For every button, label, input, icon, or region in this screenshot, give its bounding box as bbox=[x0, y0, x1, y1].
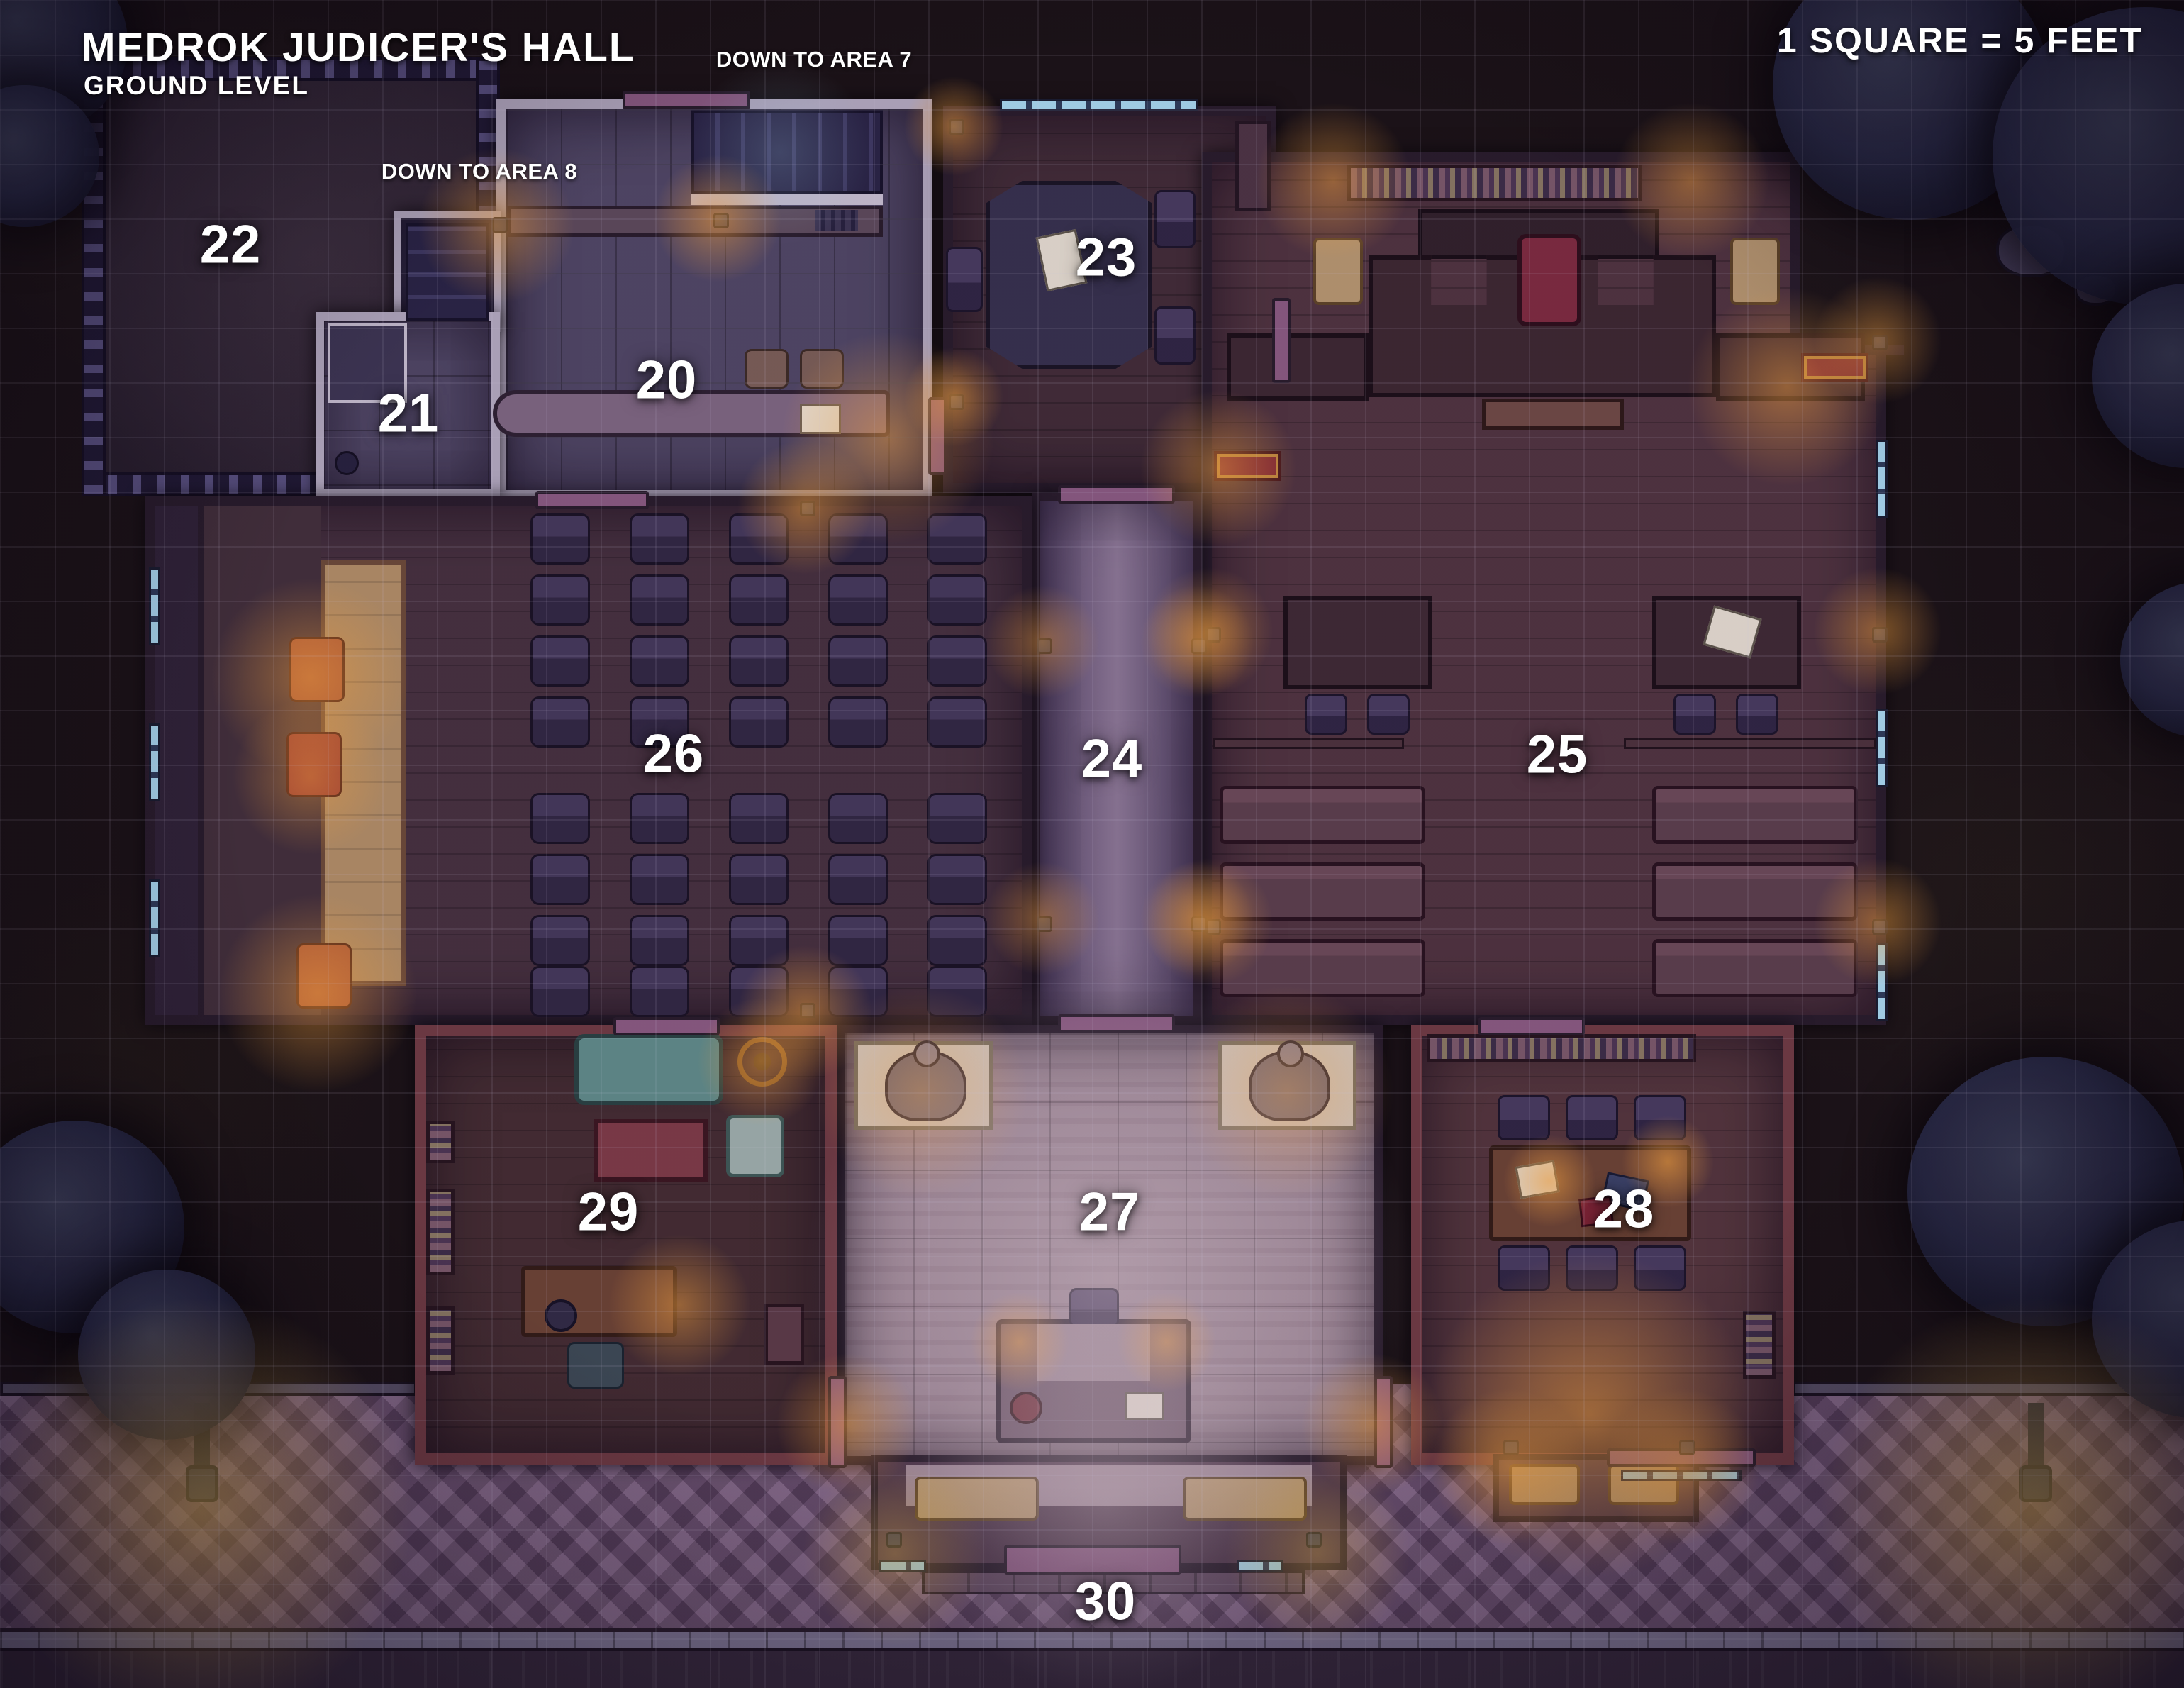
hat bbox=[545, 1299, 577, 1332]
map-scale-note: 1 SQUARE = 5 FEET bbox=[1777, 20, 2143, 61]
tribunal-chair bbox=[296, 943, 352, 1009]
gallery-chair bbox=[927, 635, 987, 687]
gallery-chair bbox=[630, 966, 689, 1017]
gallery-chair bbox=[729, 696, 789, 748]
side-table bbox=[764, 1304, 804, 1365]
window bbox=[1876, 943, 1888, 1021]
room-label-26: 26 bbox=[643, 723, 705, 785]
sconce-icon bbox=[949, 394, 964, 410]
meeting-chair bbox=[1498, 1245, 1550, 1291]
gallery-chair bbox=[530, 635, 590, 687]
bookshelf bbox=[1347, 165, 1642, 201]
window bbox=[1876, 440, 1888, 518]
counsel-chair bbox=[1673, 694, 1716, 735]
stairs-down-area-8 bbox=[406, 223, 489, 321]
gallery-chair bbox=[630, 915, 689, 966]
fruit-bowl bbox=[1010, 1392, 1042, 1424]
desk-chair bbox=[946, 247, 983, 312]
gallery-chair bbox=[729, 915, 789, 966]
open-book bbox=[800, 404, 841, 434]
tree bbox=[2120, 582, 2184, 738]
door bbox=[1478, 1017, 1585, 1035]
door bbox=[613, 1017, 720, 1035]
sconce-icon bbox=[713, 213, 729, 228]
map-note: DOWN TO AREA 8 bbox=[381, 159, 577, 184]
door bbox=[928, 397, 947, 475]
room-label-30: 30 bbox=[1075, 1571, 1137, 1633]
gallery-chair bbox=[927, 513, 987, 565]
sconce-icon bbox=[1191, 916, 1207, 932]
window bbox=[879, 1560, 926, 1572]
gallery-chair bbox=[729, 966, 789, 1017]
gallery-chair bbox=[530, 696, 590, 748]
guest-chair bbox=[1154, 190, 1196, 248]
coffee-table bbox=[594, 1119, 708, 1182]
counsel-table bbox=[1283, 596, 1432, 689]
room-label-29: 29 bbox=[578, 1182, 640, 1243]
meeting-chair bbox=[1566, 1245, 1618, 1291]
map-note: DOWN TO AREA 7 bbox=[716, 47, 912, 72]
gallery-chair bbox=[630, 854, 689, 905]
courtroom-bench bbox=[1652, 939, 1858, 997]
gallery-chair bbox=[927, 966, 987, 1017]
tree bbox=[2092, 284, 2184, 468]
sconce-icon bbox=[1503, 1440, 1519, 1455]
meeting-chair bbox=[1634, 1245, 1686, 1291]
sconce-icon bbox=[1037, 916, 1052, 932]
eagle-banner-icon bbox=[1801, 353, 1868, 382]
window bbox=[1876, 709, 1888, 787]
window bbox=[1000, 99, 1198, 111]
gallery-chair bbox=[828, 854, 888, 905]
bookshelf bbox=[426, 1121, 455, 1163]
sconce-icon bbox=[492, 217, 508, 233]
gallery-chair bbox=[630, 513, 689, 565]
counsel-chair bbox=[1367, 694, 1410, 735]
sconce-icon bbox=[1306, 1532, 1322, 1548]
bookshelf bbox=[426, 1189, 455, 1275]
courtroom-bench bbox=[1220, 862, 1425, 921]
judge-throne bbox=[1517, 234, 1581, 326]
room-label-27: 27 bbox=[1079, 1182, 1141, 1243]
road-cobbles bbox=[0, 1651, 2184, 1688]
bookshelf bbox=[1743, 1311, 1776, 1379]
porch-bench bbox=[915, 1477, 1039, 1521]
sconce-icon bbox=[1205, 919, 1221, 935]
sconce-icon bbox=[949, 119, 964, 135]
bucket bbox=[335, 451, 359, 475]
meeting-chair bbox=[1634, 1095, 1686, 1140]
gallery-chair bbox=[729, 635, 789, 687]
courtroom-bench bbox=[1652, 862, 1858, 921]
gallery-chair bbox=[927, 793, 987, 844]
window bbox=[149, 567, 160, 645]
meeting-chair bbox=[1566, 1095, 1618, 1140]
courtroom-bench bbox=[1220, 939, 1425, 997]
couch bbox=[574, 1034, 723, 1105]
street-lamp-icon bbox=[186, 1465, 218, 1502]
stair-landing-wall bbox=[691, 194, 883, 205]
gallery-chair bbox=[828, 574, 888, 626]
witness-chair bbox=[1313, 238, 1363, 305]
gallery-chair bbox=[630, 574, 689, 626]
guest-chair bbox=[1154, 306, 1196, 365]
door bbox=[1058, 1014, 1175, 1033]
gallery-chair bbox=[530, 966, 590, 1017]
room-label-25: 25 bbox=[1527, 724, 1588, 786]
door bbox=[535, 491, 649, 509]
bench-steps bbox=[1482, 399, 1624, 430]
justice-statue-icon bbox=[854, 1041, 993, 1130]
eagle-banner-icon bbox=[1214, 451, 1281, 481]
room-label-22: 22 bbox=[200, 214, 262, 276]
bookshelf bbox=[1427, 1034, 1696, 1062]
clerk-wing bbox=[1227, 333, 1369, 401]
street-lamp-post bbox=[2028, 1403, 2044, 1465]
room-label-28: 28 bbox=[1593, 1179, 1655, 1240]
courtroom-bench bbox=[1652, 786, 1858, 844]
sconce-icon bbox=[886, 1532, 902, 1548]
desk-chair bbox=[567, 1342, 624, 1389]
street-lamp-icon bbox=[2019, 1465, 2052, 1502]
gallery-chair bbox=[729, 793, 789, 844]
gallery-chair bbox=[729, 513, 789, 565]
counsel-chair bbox=[1305, 694, 1347, 735]
gallery-chair bbox=[927, 854, 987, 905]
gallery-rail bbox=[1213, 738, 1404, 749]
gallery-chair bbox=[530, 513, 590, 565]
shackles-icon bbox=[815, 210, 858, 231]
side-table bbox=[1235, 121, 1271, 211]
sconce-icon bbox=[1037, 638, 1052, 654]
tribunal-chair bbox=[286, 732, 342, 797]
door bbox=[828, 1376, 847, 1468]
sconce-icon bbox=[800, 1003, 815, 1018]
chair bbox=[745, 349, 789, 389]
gallery-chair bbox=[828, 966, 888, 1017]
tribunal-chair bbox=[289, 637, 345, 702]
gallery-chair bbox=[530, 854, 590, 905]
gallery-chair bbox=[927, 915, 987, 966]
room-label-21: 21 bbox=[378, 383, 440, 445]
sconce-icon bbox=[1872, 335, 1888, 350]
witness-chair bbox=[1730, 238, 1780, 305]
porch-bench bbox=[1183, 1477, 1307, 1521]
ledger-book bbox=[1125, 1392, 1164, 1420]
gallery-chair bbox=[630, 793, 689, 844]
sconce-icon bbox=[1205, 627, 1221, 643]
chair bbox=[800, 349, 844, 389]
office-desk bbox=[521, 1266, 677, 1337]
gallery-chair bbox=[927, 574, 987, 626]
room-label-24: 24 bbox=[1081, 728, 1143, 790]
gallery-chair bbox=[729, 574, 789, 626]
candle-wheel-chandelier-icon bbox=[737, 1037, 787, 1087]
gallery-chair bbox=[927, 696, 987, 748]
bookshelf bbox=[426, 1306, 455, 1375]
open-book bbox=[1515, 1160, 1559, 1199]
window bbox=[149, 723, 160, 801]
window bbox=[149, 879, 160, 957]
gallery-chair bbox=[530, 574, 590, 626]
gallery-chair bbox=[630, 635, 689, 687]
armchair bbox=[726, 1115, 784, 1177]
reception-desk-notch bbox=[1037, 1324, 1150, 1381]
map-subtitle: GROUND LEVEL bbox=[84, 71, 309, 101]
window bbox=[1237, 1560, 1283, 1572]
room-label-20: 20 bbox=[636, 350, 698, 411]
battle-map: MEDROK JUDICER'S HALL GROUND LEVEL 1 SQU… bbox=[0, 0, 2184, 1688]
gallery-chair bbox=[729, 854, 789, 905]
map-title: MEDROK JUDICER'S HALL bbox=[82, 24, 635, 71]
sconce-icon bbox=[1872, 919, 1888, 935]
courtroom-bench bbox=[1220, 786, 1425, 844]
door bbox=[1058, 485, 1175, 504]
porch-bench bbox=[1509, 1464, 1580, 1505]
reception-chair bbox=[1069, 1288, 1119, 1328]
room-28-meeting-room bbox=[1411, 1025, 1794, 1465]
meeting-chair bbox=[1498, 1095, 1550, 1140]
window bbox=[1621, 1470, 1742, 1481]
gallery-chair bbox=[828, 696, 888, 748]
room-label-23: 23 bbox=[1076, 227, 1137, 289]
counsel-chair bbox=[1736, 694, 1778, 735]
west-wall-gallery bbox=[155, 506, 204, 1015]
door bbox=[623, 91, 750, 109]
sconce-icon bbox=[1679, 1440, 1695, 1455]
door bbox=[1272, 298, 1291, 383]
sconce-icon bbox=[800, 501, 815, 516]
door bbox=[1374, 1376, 1393, 1468]
gallery-rail bbox=[1624, 738, 1876, 749]
gallery-chair bbox=[828, 635, 888, 687]
sconce-icon bbox=[1872, 627, 1888, 643]
stairs-down-area-7 bbox=[691, 110, 883, 194]
gallery-chair bbox=[828, 793, 888, 844]
sconce-icon bbox=[1191, 638, 1207, 654]
justice-statue-icon bbox=[1218, 1041, 1356, 1130]
gallery-chair bbox=[828, 513, 888, 565]
gallery-chair bbox=[530, 915, 590, 966]
gallery-chair bbox=[530, 793, 590, 844]
tree bbox=[78, 1270, 255, 1440]
gallery-chair bbox=[828, 915, 888, 966]
